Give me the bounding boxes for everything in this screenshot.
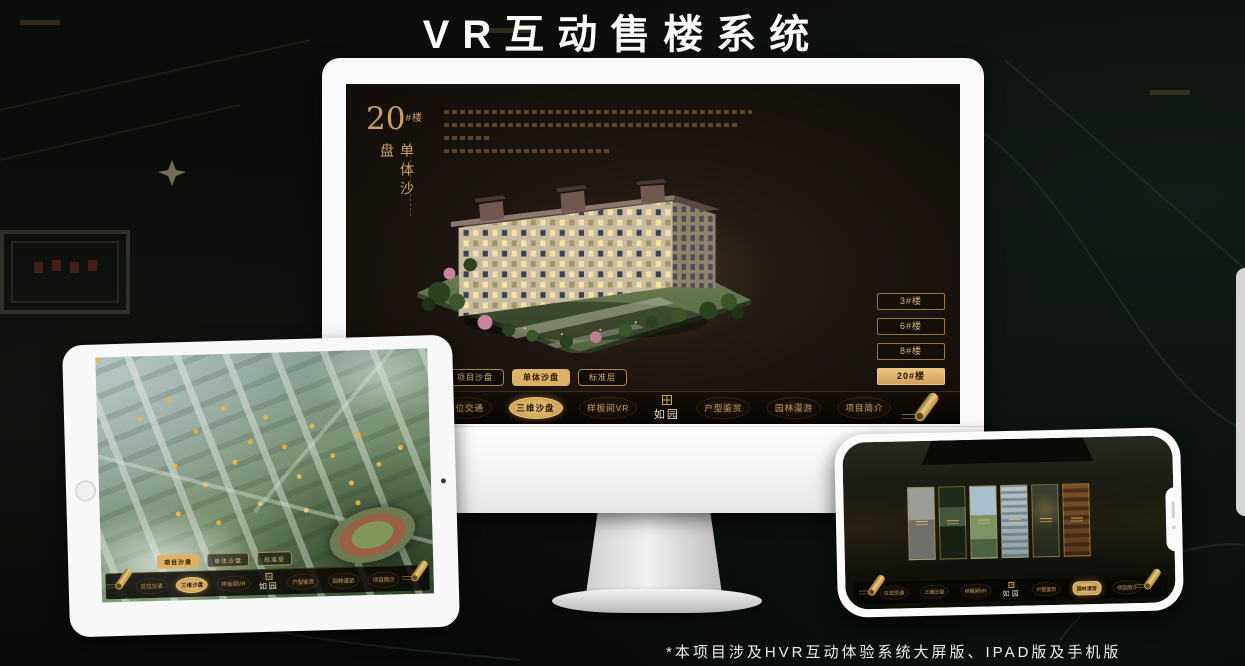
brand-logo: 如园: [1002, 581, 1020, 598]
tab-project-sandbox[interactable]: 项目沙盘: [157, 554, 199, 569]
scene-gallery: [907, 483, 1091, 560]
seal-icon: [662, 395, 672, 405]
tablet-device: 项目沙盘 单体沙盘 标准层 区位交通 三维沙盘 样板间VR 如园 户型鉴赏 园林…: [62, 335, 460, 638]
tab-single-sandbox[interactable]: 单体沙盘: [207, 552, 249, 567]
building-description-lines: [444, 110, 752, 162]
nav-item-floorplan-view[interactable]: 户型鉴赏: [1032, 582, 1061, 597]
phone-nav-bar: 区位交通 三维沙盘 样板间VR 如园 户型鉴赏 园林漫游 项目简介: [853, 575, 1167, 604]
nav-item-project-intro[interactable]: 项目简介: [367, 571, 399, 588]
scroll-handle-icon[interactable]: [1139, 567, 1158, 592]
gallery-panel[interactable]: [907, 487, 936, 561]
subtitle-divider: [410, 150, 411, 216]
cloud-fog: [307, 348, 434, 421]
phone-notch: [1165, 487, 1182, 551]
seal-icon: [265, 573, 272, 580]
building-number: 20: [366, 101, 405, 137]
nav-item-3d-sandbox[interactable]: 三维沙盘: [176, 576, 208, 593]
tab-standard-floor[interactable]: 标准层: [257, 551, 292, 566]
brand-logo: 如园: [258, 573, 279, 593]
building-number-badges: [95, 357, 100, 362]
floor-button-6[interactable]: 6#楼: [877, 318, 945, 335]
gate-beam: [921, 437, 1093, 465]
gallery-panel[interactable]: [938, 486, 967, 560]
phone-display: 区位交通 三维沙盘 样板间VR 如园 户型鉴赏 园林漫游 项目简介: [842, 435, 1176, 609]
nav-item-3d-sandbox[interactable]: 三维沙盘: [509, 397, 563, 419]
gallery-panel[interactable]: [1062, 483, 1091, 557]
nav-item-location-traffic[interactable]: 区位交通: [136, 577, 168, 594]
nav-item-floorplan-view[interactable]: 户型鉴赏: [696, 397, 750, 419]
phone-device: 区位交通 三维沙盘 样板间VR 如园 户型鉴赏 园林漫游 项目简介: [834, 427, 1184, 618]
brand-logo-text: 如园: [654, 406, 680, 422]
sand-table-building-view[interactable]: [414, 176, 754, 353]
tablet-display: 项目沙盘 单体沙盘 标准层 区位交通 三维沙盘 样板间VR 如园 户型鉴赏 园林…: [95, 348, 434, 602]
nav-item-garden-tour[interactable]: 园林漫游: [767, 397, 821, 419]
page-background: VR互动售楼系统 20#楼 单体沙盘: [0, 0, 1245, 666]
page-title: VR互动售楼系统: [0, 2, 1245, 60]
nav-item-location-traffic[interactable]: 区位交通: [879, 585, 908, 600]
nav-item-garden-tour[interactable]: 园林漫游: [327, 572, 359, 589]
nav-item-model-room-vr[interactable]: 样板间VR: [960, 583, 991, 598]
footnote-text: *本项目涉及HVR互动体验系统大屏版、IPAD版及手机版: [666, 641, 1121, 662]
nav-item-project-intro[interactable]: 项目简介: [837, 397, 891, 419]
background-edge-card: [1236, 268, 1245, 516]
brand-logo-text: 如园: [259, 581, 279, 593]
nav-item-model-room-vr[interactable]: 样板间VR: [216, 575, 251, 592]
gallery-panel[interactable]: [1031, 484, 1060, 558]
floor-button-3[interactable]: 3#楼: [877, 293, 945, 310]
floor-button-20[interactable]: 20#楼: [877, 368, 945, 385]
camera-icon: [441, 478, 446, 483]
scroll-handle-icon[interactable]: [406, 559, 425, 584]
brand-logo-text: 如园: [1002, 588, 1020, 598]
gallery-panel[interactable]: [1000, 485, 1029, 559]
monitor-view-tabs: 项目沙盘 单体沙盘 标准层: [446, 369, 627, 386]
nav-item-model-room-vr[interactable]: 样板间VR: [579, 397, 637, 419]
monitor-stand-neck: [586, 508, 722, 594]
building-number-unit: #楼: [405, 113, 423, 124]
scroll-handle-icon[interactable]: [908, 391, 934, 424]
floor-button-8[interactable]: 8#楼: [877, 343, 945, 360]
seal-icon: [1008, 581, 1014, 587]
scroll-handle-icon[interactable]: [110, 567, 129, 592]
home-button[interactable]: [75, 480, 97, 502]
floor-button-group: 3#楼 6#楼 8#楼 20#楼: [877, 293, 945, 385]
nav-item-3d-sandbox[interactable]: 三维沙盘: [920, 584, 949, 599]
tab-project-sandbox[interactable]: 项目沙盘: [446, 369, 504, 386]
gallery-panel[interactable]: [969, 485, 998, 559]
scroll-handle-icon[interactable]: [863, 574, 882, 599]
monitor-stand-base: [552, 589, 762, 613]
nav-item-garden-tour[interactable]: 园林漫游: [1072, 581, 1101, 596]
nav-item-floorplan-view[interactable]: 户型鉴赏: [287, 573, 319, 590]
tab-single-sandbox[interactable]: 单体沙盘: [512, 369, 570, 386]
brand-logo: 如园: [654, 395, 680, 422]
tab-standard-floor[interactable]: 标准层: [578, 369, 627, 386]
